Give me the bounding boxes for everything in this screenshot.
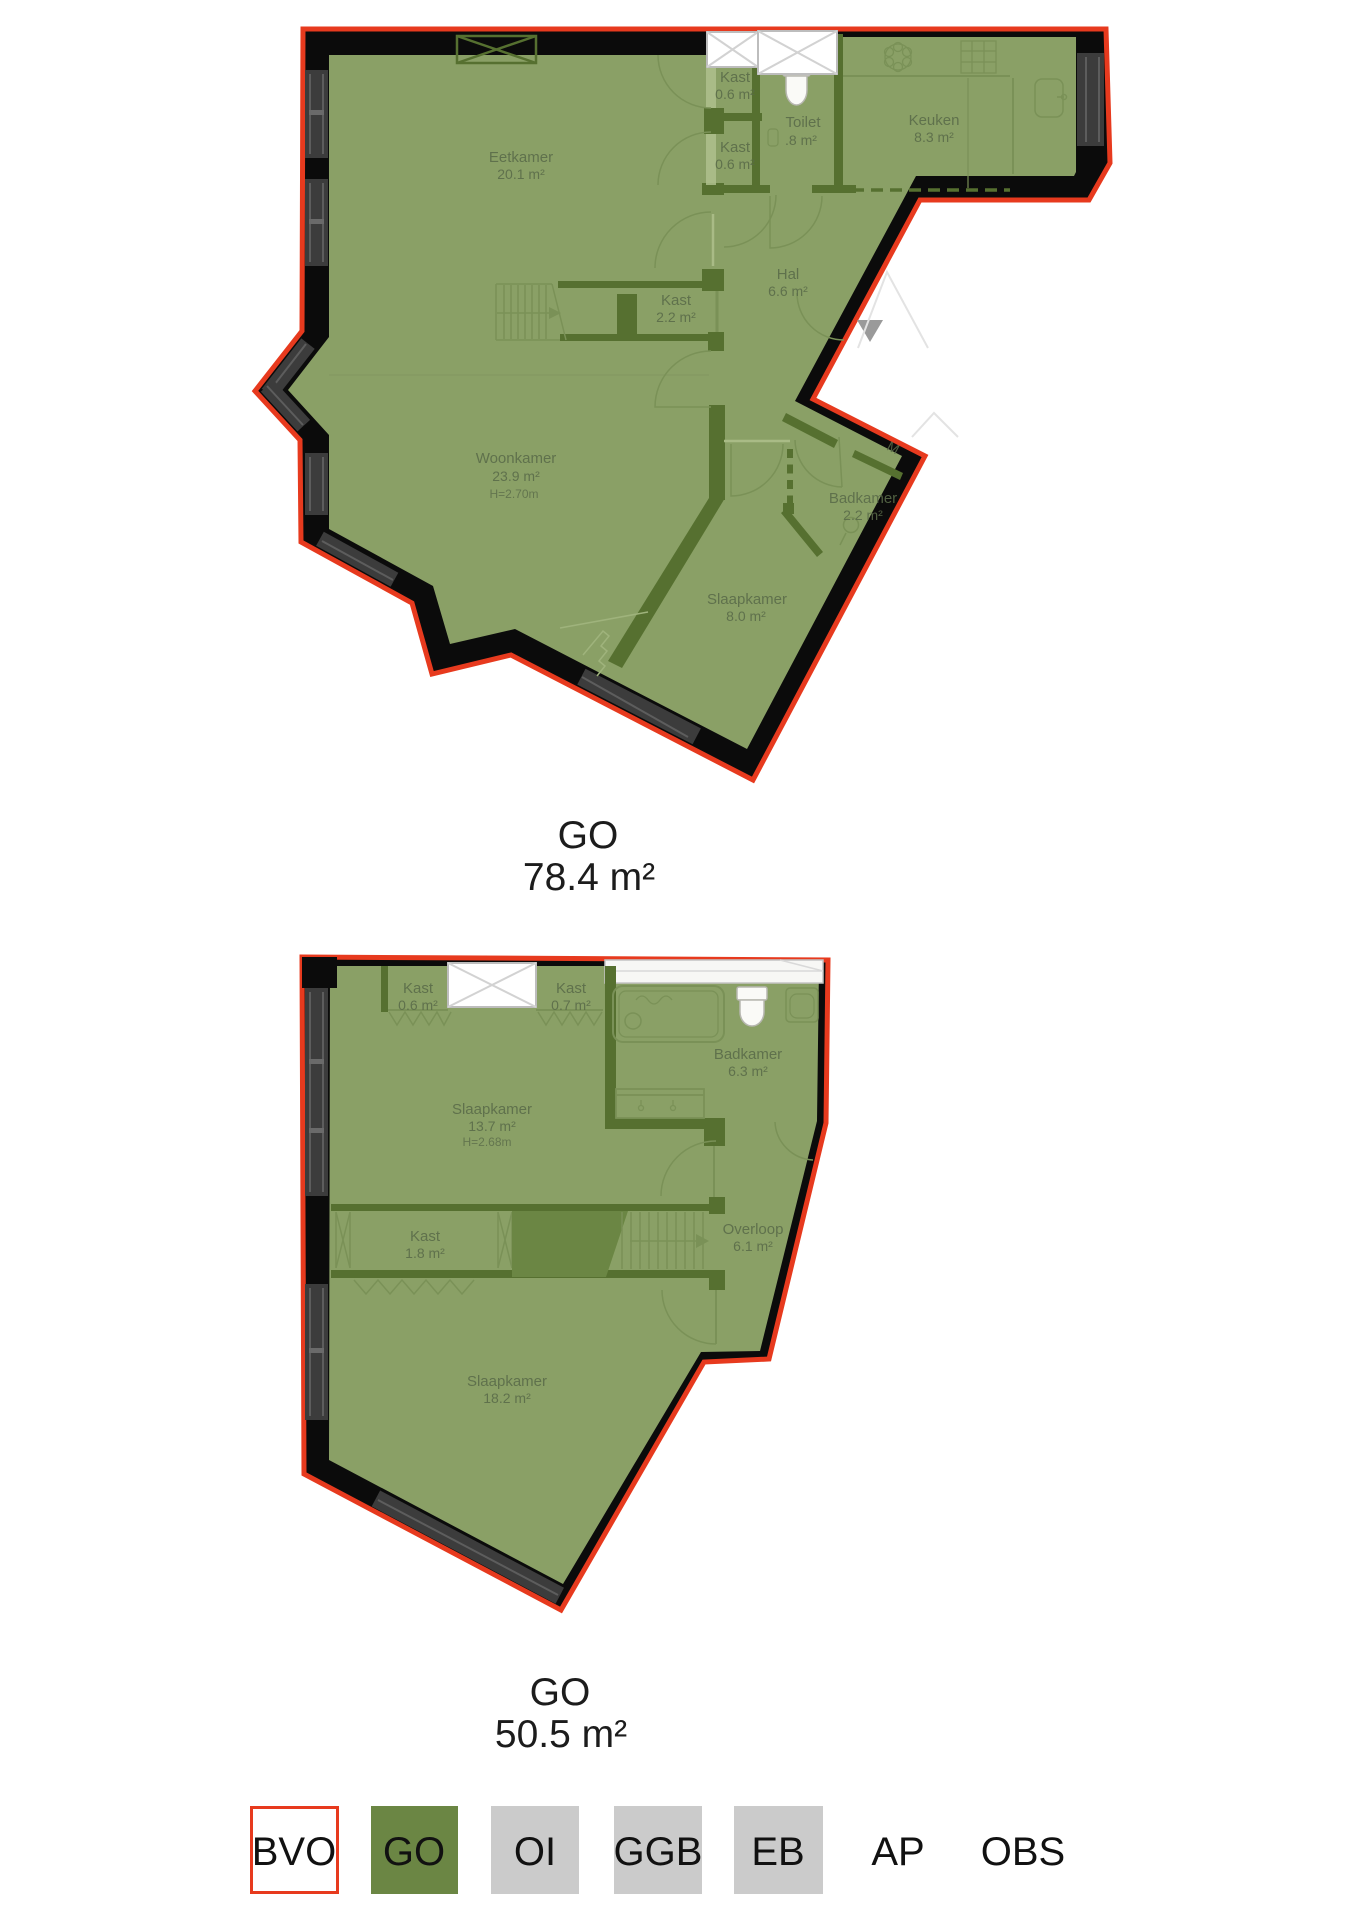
svg-text:Kast: Kast (661, 292, 692, 309)
svg-text:BVO: BVO (252, 1830, 336, 1874)
svg-text:0.6 m²: 0.6 m² (715, 156, 755, 172)
svg-text:GO: GO (530, 1671, 591, 1714)
svg-text:EB: EB (751, 1830, 804, 1874)
svg-text:GO: GO (558, 814, 619, 857)
svg-text:OBS: OBS (981, 1830, 1065, 1874)
svg-text:Kast: Kast (556, 980, 587, 997)
svg-text:8.0 m²: 8.0 m² (726, 608, 766, 624)
svg-text:23.9 m²: 23.9 m² (492, 468, 540, 484)
svg-text:2.2 m²: 2.2 m² (843, 507, 883, 523)
svg-text:Slaapkamer: Slaapkamer (467, 1373, 547, 1390)
svg-text:8.3 m²: 8.3 m² (914, 129, 954, 145)
svg-text:Kast: Kast (720, 69, 751, 86)
svg-text:Slaapkamer: Slaapkamer (452, 1101, 532, 1118)
svg-text:Overloop: Overloop (723, 1221, 784, 1238)
svg-text:50.5 m²: 50.5 m² (495, 1713, 627, 1756)
svg-text:Kast: Kast (720, 139, 751, 156)
svg-text:0.6 m²: 0.6 m² (398, 997, 438, 1013)
svg-text:20.1 m²: 20.1 m² (497, 166, 545, 182)
svg-text:6.1 m²: 6.1 m² (733, 1238, 773, 1254)
svg-text:Keuken: Keuken (909, 112, 960, 129)
svg-text:Eetkamer: Eetkamer (489, 149, 553, 166)
svg-text:GO: GO (383, 1830, 445, 1874)
svg-text:78.4 m²: 78.4 m² (523, 856, 655, 899)
svg-text:6.6 m²: 6.6 m² (768, 283, 808, 299)
svg-text:1.8 m²: 1.8 m² (405, 1245, 445, 1261)
svg-text:18.2 m²: 18.2 m² (483, 1390, 531, 1406)
svg-text:0.7 m²: 0.7 m² (551, 997, 591, 1013)
svg-text:Kast: Kast (403, 980, 434, 997)
svg-text:Badkamer: Badkamer (714, 1046, 782, 1063)
svg-text:Slaapkamer: Slaapkamer (707, 591, 787, 608)
svg-text:H=2.70m: H=2.70m (489, 487, 538, 501)
svg-text:H=2.68m: H=2.68m (462, 1135, 511, 1149)
svg-text:Kast: Kast (410, 1228, 441, 1245)
svg-text:AP: AP (871, 1830, 924, 1874)
svg-text:GGB: GGB (614, 1830, 703, 1874)
svg-text:0.6 m²: 0.6 m² (715, 86, 755, 102)
svg-text:Woonkamer: Woonkamer (476, 450, 557, 467)
svg-text:6.3 m²: 6.3 m² (728, 1063, 768, 1079)
svg-text:.8 m²: .8 m² (785, 132, 817, 148)
svg-text:2.2 m²: 2.2 m² (656, 309, 696, 325)
svg-text:Hal: Hal (777, 266, 800, 283)
svg-text:OI: OI (514, 1830, 556, 1874)
svg-text:Badkamer: Badkamer (829, 490, 897, 507)
svg-text:Toilet: Toilet (785, 114, 821, 131)
svg-text:13.7 m²: 13.7 m² (468, 1118, 516, 1134)
